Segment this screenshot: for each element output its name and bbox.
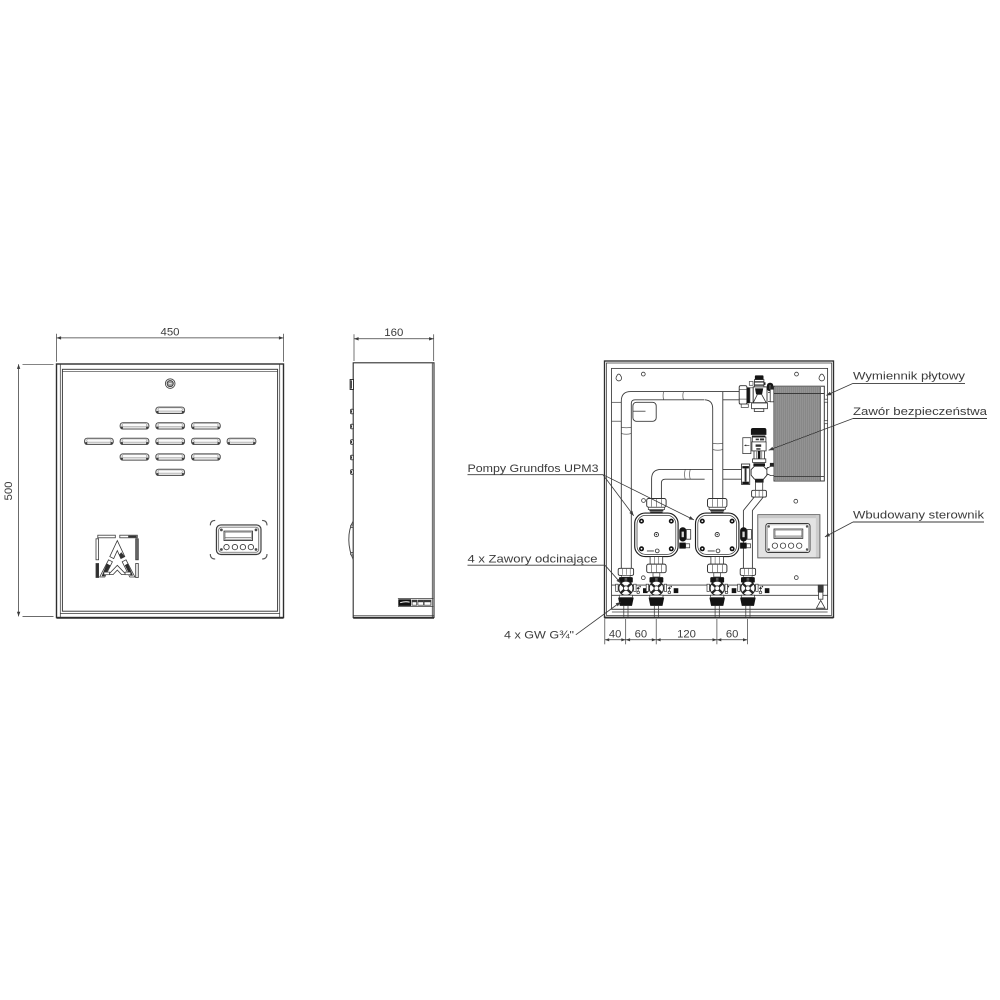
- svg-text:60: 60: [726, 628, 739, 640]
- svg-text:450: 450: [161, 327, 180, 339]
- svg-text:4 x GW G¾": 4 x GW G¾": [504, 630, 574, 642]
- svg-text:60: 60: [635, 628, 648, 640]
- svg-text:Wymiennik płytowy: Wymiennik płytowy: [853, 371, 965, 383]
- svg-text:Zawór bezpieczeństwa: Zawór bezpieczeństwa: [853, 406, 988, 418]
- svg-text:4 x Zawory odcinające: 4 x Zawory odcinające: [468, 553, 598, 565]
- svg-text:120: 120: [677, 628, 696, 640]
- svg-text:160: 160: [384, 327, 403, 339]
- svg-text:40: 40: [609, 628, 622, 640]
- svg-text:Wbudowany sterownik: Wbudowany sterownik: [853, 509, 984, 521]
- svg-text:500: 500: [3, 482, 15, 501]
- svg-text:Pompy Grundfos UPM3: Pompy Grundfos UPM3: [468, 463, 599, 475]
